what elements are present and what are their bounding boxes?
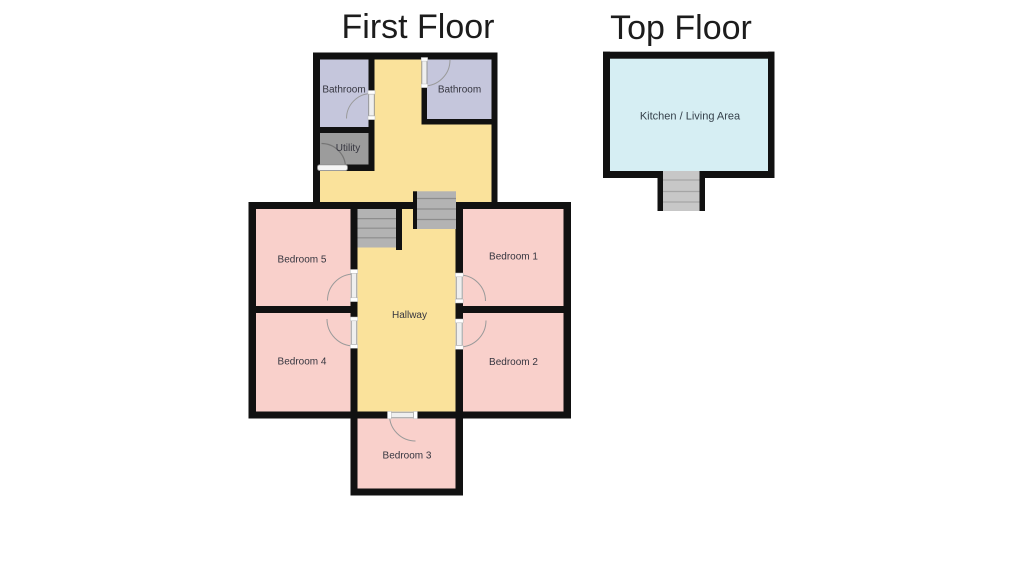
svg-text:Bathroom: Bathroom — [438, 85, 481, 96]
svg-text:Top Floor: Top Floor — [610, 9, 752, 47]
svg-text:First Floor: First Floor — [342, 8, 495, 46]
svg-text:Hallway: Hallway — [392, 310, 427, 321]
svg-text:Bathroom: Bathroom — [322, 85, 365, 96]
svg-text:Bedroom 4: Bedroom 4 — [278, 356, 327, 367]
svg-text:Bedroom 5: Bedroom 5 — [278, 254, 327, 265]
svg-text:Bedroom 3: Bedroom 3 — [383, 451, 432, 462]
svg-text:Utility: Utility — [336, 143, 360, 154]
svg-text:Kitchen / Living Area: Kitchen / Living Area — [640, 111, 741, 123]
svg-text:Bedroom 1: Bedroom 1 — [489, 251, 538, 262]
svg-text:Bedroom 2: Bedroom 2 — [489, 357, 538, 368]
